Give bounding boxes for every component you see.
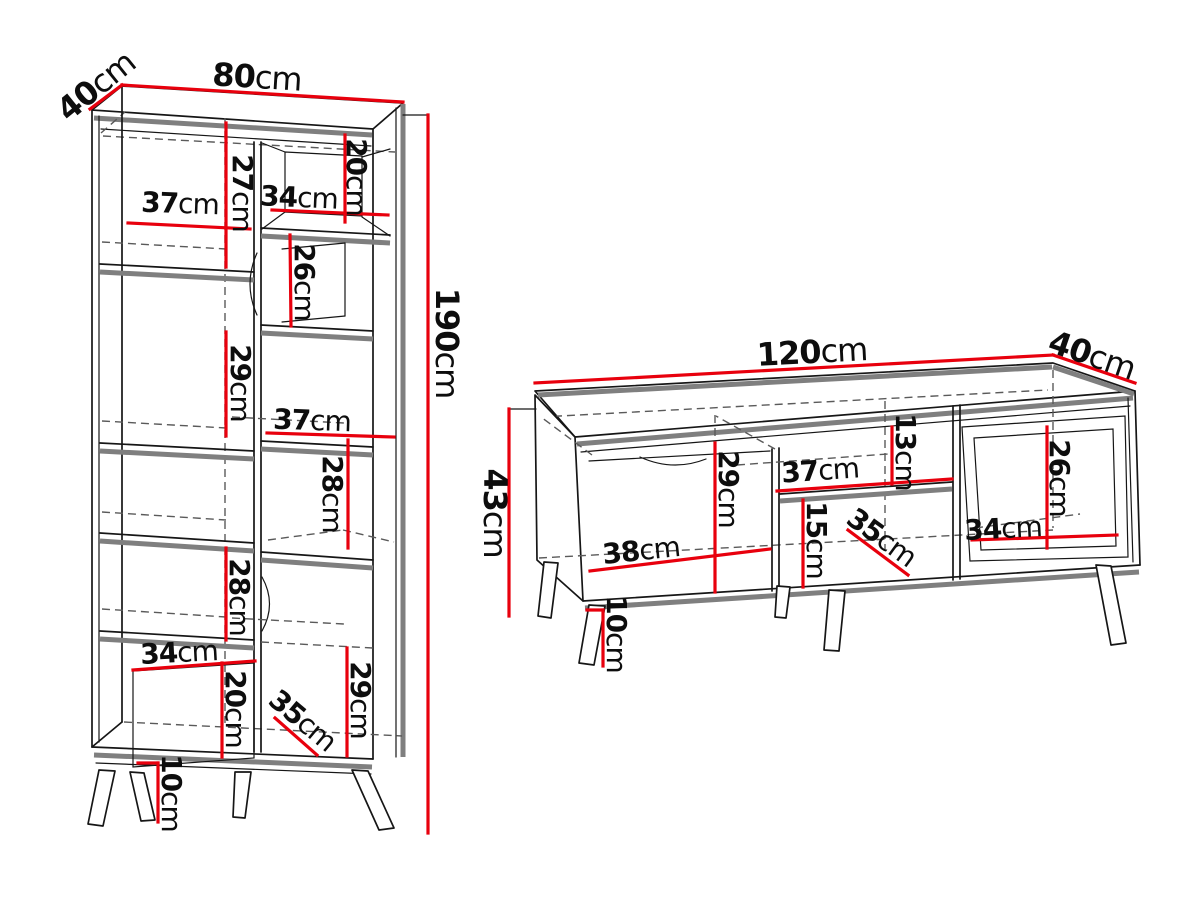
label-height-43: 43cm	[476, 468, 514, 557]
label-35-door: 35cm	[263, 682, 344, 757]
label-29-mid: 29cm	[225, 344, 258, 422]
diagram-svg: 40cm 80cm 190cm 27cm 37cm 34cm 20cm 26cm…	[0, 0, 1200, 900]
label-15: 15cm	[801, 501, 834, 579]
label-29-bottom: 29cm	[345, 661, 378, 739]
label-34-top: 34cm	[259, 179, 338, 215]
label-leg-10: 10cm	[601, 595, 634, 673]
label-27: 27cm	[227, 154, 260, 232]
label-34: 34cm	[963, 509, 1042, 546]
label-leg-10: 10cm	[156, 754, 189, 832]
label-20-bottom: 20cm	[220, 670, 253, 748]
label-width-80: 80cm	[211, 55, 302, 98]
label-37-mid: 37cm	[273, 402, 352, 438]
label-26: 26cm	[289, 243, 322, 321]
tv-stand: 120cm 40cm 43cm 29cm 37cm 13cm 15cm 35cm…	[476, 322, 1140, 672]
label-28-right: 28cm	[317, 455, 350, 533]
label-28-left: 28cm	[224, 558, 257, 636]
label-29: 29cm	[713, 450, 746, 528]
label-37-top: 37cm	[141, 185, 220, 221]
label-38: 38cm	[601, 530, 682, 571]
label-26: 26cm	[1044, 439, 1077, 517]
label-37: 37cm	[780, 451, 860, 489]
bookcase: 40cm 80cm 190cm 27cm 37cm 34cm 20cm 26cm…	[49, 43, 466, 833]
label-height-190: 190cm	[428, 288, 466, 399]
label-34-bottom: 34cm	[139, 633, 218, 670]
label-width-120: 120cm	[756, 330, 868, 374]
label-20-top: 20cm	[341, 138, 374, 216]
furniture-dimension-diagram: 40cm 80cm 190cm 27cm 37cm 34cm 20cm 26cm…	[0, 0, 1200, 900]
label-13: 13cm	[890, 413, 923, 491]
label-35: 35cm	[841, 501, 923, 573]
